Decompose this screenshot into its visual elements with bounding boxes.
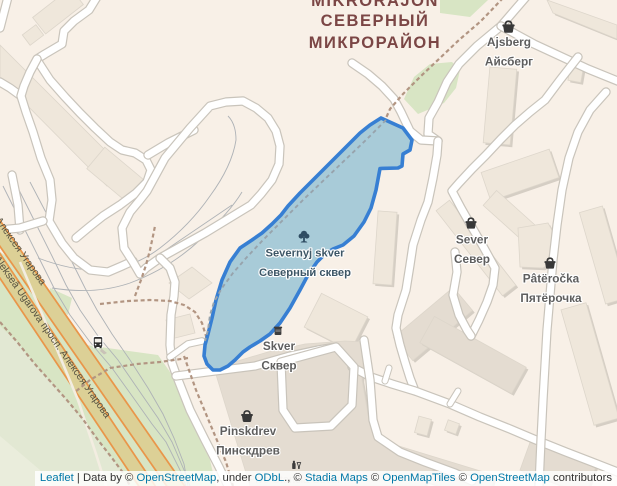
svg-text:Ajsberg: Ajsberg: [487, 35, 531, 49]
svg-text:МИКРОРАЙОН: МИКРОРАЙОН: [309, 33, 441, 52]
svg-text:Severnyj skver: Severnyj skver: [266, 248, 346, 260]
svg-text:Sever: Sever: [456, 233, 489, 247]
svg-text:Pâtëročka: Pâtëročka: [523, 272, 580, 286]
svg-text:Skver: Skver: [263, 339, 296, 353]
svg-text:Север: Север: [454, 252, 490, 266]
svg-text:Сквер: Сквер: [261, 358, 296, 372]
svg-text:Пинскдрев: Пинскдрев: [216, 443, 280, 457]
svg-text:СЕВЕРНЫЙ: СЕВЕРНЫЙ: [321, 11, 430, 30]
svg-text:Pinskdrev: Pinskdrev: [220, 424, 277, 438]
svg-text:Айсберг: Айсберг: [485, 54, 533, 68]
svg-text:MIKRORAJON: MIKRORAJON: [311, 0, 439, 10]
svg-text:Пятёрочка: Пятёрочка: [520, 291, 582, 305]
svg-text:Северный сквер: Северный сквер: [259, 267, 351, 279]
